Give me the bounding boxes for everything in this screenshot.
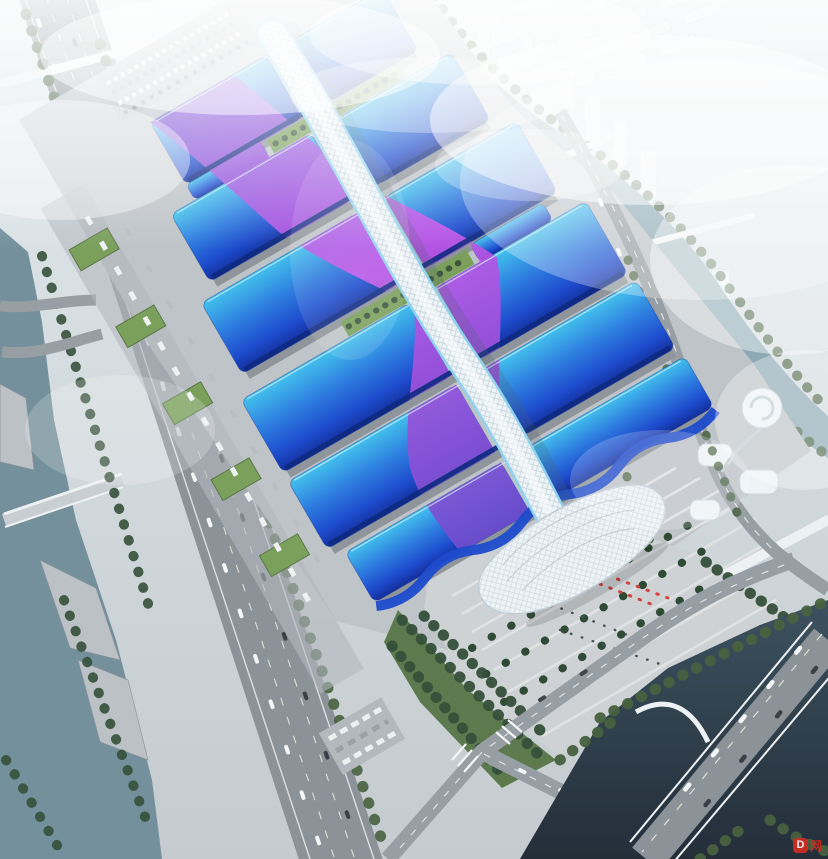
watermark-logo-badge: D <box>793 838 808 853</box>
watermark-text: 网 <box>810 837 823 854</box>
rendering-canvas <box>0 0 828 859</box>
watermark: D 网 <box>793 837 823 854</box>
aerial-rendering: D 网 <box>0 0 828 859</box>
